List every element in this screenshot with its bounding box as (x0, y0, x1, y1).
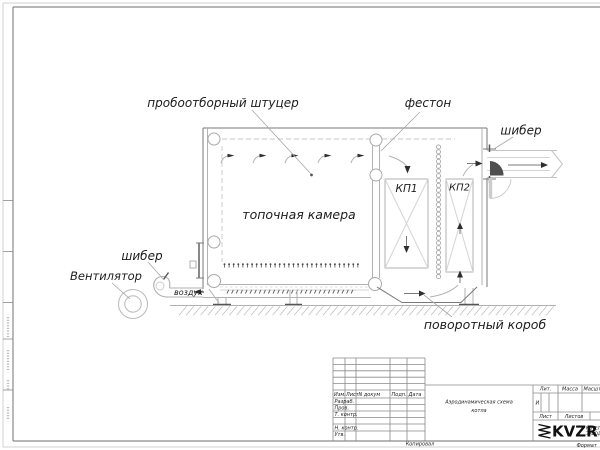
massa-header: Масса (562, 387, 578, 393)
sheet-frame (3, 3, 600, 447)
gas-flow-arrows (221, 154, 365, 163)
duct-break-symbol (552, 151, 563, 178)
grate-sprocket-front (208, 275, 221, 288)
left-margin-column (3, 201, 13, 421)
document-title-line1: Аэродинамическая схема (444, 400, 513, 406)
festoon-tube (370, 134, 382, 278)
kp1-package: КП1 (385, 179, 428, 268)
tube-bank (436, 145, 440, 279)
listov-header: Листов (564, 414, 584, 420)
col-ndokum: N докум (359, 392, 381, 398)
grate-pins (224, 263, 359, 267)
label-sampling-fitting: пробоотборный штуцер (147, 96, 299, 110)
masshtab-header: Масштаб (584, 387, 600, 393)
label-air: воздух (174, 288, 203, 297)
label-damper-outlet: шибер (500, 124, 542, 138)
col-data: Дата (408, 392, 422, 398)
row-tkontr: Т. контр. (335, 412, 358, 418)
document-title-line2: котла (471, 408, 486, 414)
turning-duct (377, 287, 477, 303)
burner-bracket (190, 243, 204, 278)
row-utv: Утв. (335, 432, 346, 438)
row-nkontr: Н. контр. (335, 425, 359, 431)
ground-hatch (179, 306, 554, 315)
company-logo: KVZR КОТЕЛЬНЫЙ ЗАВОД (539, 423, 600, 441)
label-damper-fan: шибер (121, 249, 163, 263)
company-name-line2: ЗАВОД (586, 431, 600, 437)
format-label: Формат (577, 443, 598, 449)
lit-value: И (536, 401, 540, 407)
damper-blade (490, 161, 504, 176)
label-festoon: фестон (405, 96, 452, 110)
row-razrab: Разраб. (335, 399, 355, 405)
label-turning-duct: поворотный короб (424, 317, 547, 332)
spring-icon (539, 425, 551, 439)
boiler-diagram: КП1 КП2 (70, 96, 562, 332)
chain-grate (203, 263, 382, 297)
copied-label: Копировал (406, 442, 435, 448)
drawing-sheet: КП1 КП2 (0, 0, 600, 450)
row-prov: Пров. (335, 406, 350, 412)
drum-circle (208, 133, 220, 145)
label-fan: Вентилятор (70, 269, 142, 283)
lit-header: Лит. (539, 387, 552, 393)
col-izm: Изм. (334, 392, 346, 398)
kp2-label: КП2 (449, 183, 470, 194)
title-block: Изм. Лист N докум Подп. Дата Разраб. Про… (333, 358, 600, 449)
list-header: Лист (538, 414, 553, 420)
company-name-line1: КОТЕЛЬНЫЙ (586, 425, 600, 432)
kp1-label: КП1 (395, 183, 417, 195)
col-podp: Подп. (392, 392, 407, 398)
label-furnace-chamber: топочная камера (242, 207, 355, 222)
fan-wheel (119, 290, 148, 319)
